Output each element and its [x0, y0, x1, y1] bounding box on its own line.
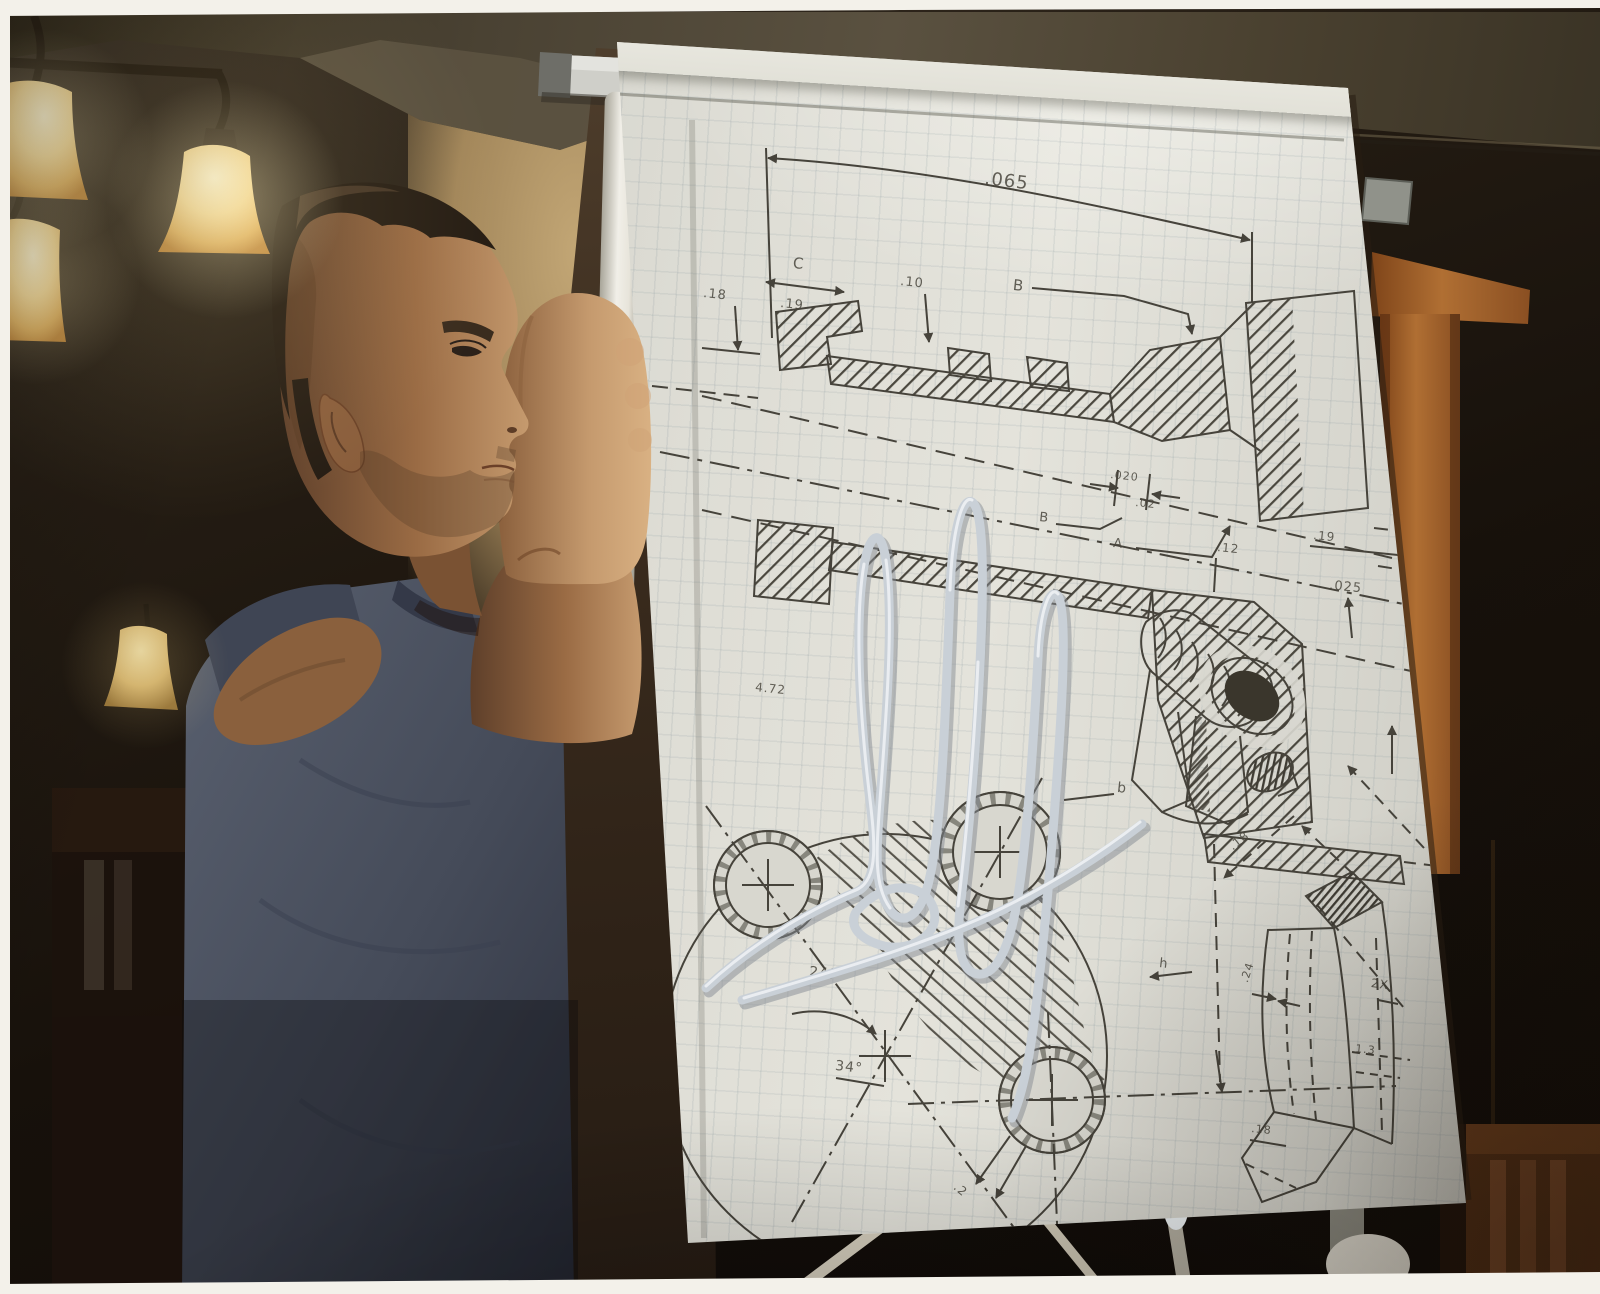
- autographed-photo-print: .065 C .18 .19 .10 B .020 .02 B A .12 .1…: [0, 0, 1600, 1294]
- autograph-signature: [0, 0, 1600, 1294]
- print-border-left: [0, 0, 10, 1294]
